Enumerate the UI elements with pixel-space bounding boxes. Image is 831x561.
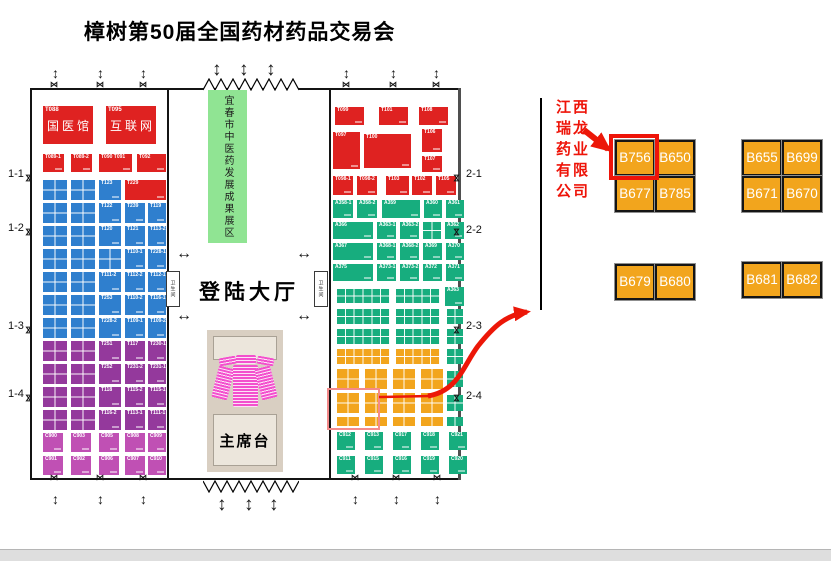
booth-name [447, 371, 463, 387]
company-name-line: 公司 [556, 181, 600, 202]
booth-name [393, 393, 415, 413]
flow-arrow-icon: ↕ [244, 495, 254, 514]
booth-name [335, 107, 364, 125]
booth-name [396, 289, 440, 303]
booth-name [99, 410, 121, 430]
flow-arrow-icon: ⋈ [24, 174, 32, 182]
booth: A363-2 [400, 222, 419, 239]
flow-arrow-icon: ⋈ [24, 228, 32, 236]
booth-name [333, 132, 360, 169]
booth [71, 272, 95, 292]
booth-name [99, 226, 121, 246]
side-room-right: 卫生间 [314, 271, 328, 307]
booth: A368-1 [377, 243, 396, 260]
booth-name [99, 387, 121, 407]
panel-booth: B682 [782, 262, 822, 298]
booth-name [445, 287, 464, 306]
booth: T098-2 [357, 176, 377, 195]
flow-arrow-icon: ⋈ [452, 394, 460, 402]
side-room-left: 卫生间 [166, 271, 180, 307]
panel-booth-label: B699 [786, 151, 818, 166]
panel-booth: B680 [655, 264, 695, 300]
booth-name [99, 295, 121, 315]
booth-name [337, 349, 390, 364]
booth-name [421, 432, 439, 450]
booth: T102 [412, 176, 432, 195]
booth-name [447, 309, 463, 324]
booth [393, 393, 415, 413]
flow-arrow-icon: ↕ [433, 66, 440, 80]
booth-name [43, 410, 67, 430]
booth: T095 互联网 [106, 106, 156, 144]
panel-booth-label: B677 [619, 187, 651, 202]
flow-arrow-icon: ↕ [343, 66, 350, 80]
booth [43, 387, 67, 407]
booth-name [357, 200, 377, 218]
booth: T231-2 [125, 364, 145, 384]
flow-arrow-icon: ↕ [52, 492, 59, 506]
booth [71, 318, 95, 338]
booth: C912 [337, 432, 355, 450]
booth: T107 [422, 156, 442, 172]
map-highlight-region [327, 388, 380, 430]
booth-name [43, 154, 64, 172]
panel-booth-label: B682 [786, 273, 818, 288]
booth-name [377, 243, 396, 260]
flow-arrow-icon: ↔ [176, 246, 192, 262]
booth: T112-2 [125, 272, 145, 292]
panel-booth: B650 [655, 140, 695, 176]
panel-booth: B785 [655, 176, 695, 212]
booth-name [148, 226, 166, 246]
booth-name [377, 264, 396, 281]
booth [71, 341, 95, 361]
booth-name [396, 309, 440, 324]
booth-name [125, 249, 145, 269]
booth: A367 [333, 243, 373, 260]
booth-name [379, 107, 408, 125]
booth-name [337, 369, 359, 389]
booth: T229 [125, 180, 166, 200]
booth-name [337, 432, 355, 450]
booth-name [43, 387, 67, 407]
booth-name [43, 272, 67, 292]
booth-name [71, 295, 95, 315]
booth [337, 369, 359, 389]
flow-arrow-icon: ⋈ [433, 474, 441, 482]
side-room-left-label: 卫生间 [170, 280, 177, 298]
company-name-line: 江西 [556, 97, 600, 118]
booth: T108 [419, 107, 448, 125]
booth [71, 295, 95, 315]
flow-arrow-icon: ⋈ [139, 474, 147, 482]
booth-name [99, 203, 121, 223]
booth-name [125, 318, 145, 338]
stage-label: 主席台 [213, 414, 277, 466]
booth-name [365, 432, 383, 450]
booth-name [125, 364, 145, 384]
row-label: 2-2 [466, 224, 482, 236]
flow-arrow-icon: ⋈ [452, 326, 460, 334]
booth [43, 341, 67, 361]
booth [447, 349, 463, 364]
booth [43, 410, 67, 430]
booth-name [393, 417, 415, 426]
booth: T113-1 [125, 410, 145, 430]
booth-name [333, 264, 373, 281]
flow-arrow-icon: ⋈ [392, 474, 400, 482]
booth: T230-1 [148, 341, 166, 361]
booth: A371 [446, 264, 464, 281]
booth-name [333, 243, 373, 260]
booth: T089-1 [43, 154, 64, 172]
booth: A370 [446, 243, 464, 260]
booth-name [337, 329, 390, 344]
booth: T092 [137, 154, 166, 172]
booth: C902 [71, 456, 91, 475]
booth [71, 364, 95, 384]
booth-name [421, 369, 443, 389]
booth: A358-1 [333, 200, 353, 218]
row-label: 2-3 [466, 320, 482, 332]
booth: C917 [393, 432, 411, 450]
booth-name [412, 176, 432, 195]
flow-arrow-icon: ⋈ [24, 326, 32, 334]
booth: T103 [386, 176, 409, 195]
row-label: 2-4 [466, 390, 482, 402]
booth-name [71, 154, 92, 172]
booth-name [125, 433, 145, 452]
booth: T115-2 [125, 387, 145, 407]
booth: C919 [421, 456, 439, 474]
flow-arrow-icon: ↔ [296, 308, 312, 324]
booth: A369 [423, 243, 442, 260]
booth [43, 364, 67, 384]
booth: T110-2 [125, 295, 145, 315]
panel-booth-label: B680 [659, 275, 691, 290]
booth-name [148, 341, 166, 361]
flow-arrow-icon: ↕ [434, 492, 441, 506]
booth-name: 国医馆 [43, 106, 93, 144]
company-name-line: 瑞龙 [556, 118, 600, 139]
panel-booth-label: B671 [746, 187, 778, 202]
booth: T116-1 [148, 295, 166, 315]
booth-name [446, 243, 464, 260]
booth-name [148, 456, 166, 475]
booth [421, 417, 443, 426]
page-title: 樟树第50届全国药材药品交易会 [84, 16, 395, 46]
booth: T109-1 [125, 318, 145, 338]
booth: T239 [125, 203, 145, 223]
booth: T231-1 [148, 364, 166, 384]
flow-arrow-icon: ↕ [393, 492, 400, 506]
booth: A373-2 [400, 264, 419, 281]
booth [43, 180, 67, 200]
booth-name [400, 264, 419, 281]
booth [71, 387, 95, 407]
booth [447, 417, 463, 426]
booth [43, 272, 67, 292]
flow-arrow-icon: ⋈ [96, 474, 104, 482]
row-label: 2-1 [466, 168, 482, 180]
floor-plan-page: { "title": "樟树第50届全国药材药品交易会", "zones": {… [0, 0, 831, 561]
booth [396, 289, 440, 303]
booth: T090 T091 [99, 154, 132, 172]
side-room-right-label: 卫生间 [318, 280, 325, 298]
row-label: 1-4 [8, 388, 24, 400]
booth: C910 [148, 456, 166, 475]
booth [396, 329, 440, 344]
booth-name [400, 243, 419, 260]
booth [393, 369, 415, 389]
booth: T111-2 [99, 272, 121, 292]
booth-name [422, 156, 442, 172]
booth [393, 417, 415, 426]
booth: T100 [364, 134, 411, 168]
panel-booth: B670 [782, 176, 822, 212]
booth [421, 393, 443, 413]
booth-name [71, 341, 95, 361]
flow-arrow-icon: ⋈ [389, 81, 397, 89]
booth: C900 [43, 433, 63, 452]
booth-name [137, 154, 166, 172]
booth-name [71, 272, 95, 292]
flow-arrow-icon: ↕ [266, 60, 276, 79]
panel-booth-label: B785 [659, 187, 691, 202]
flow-arrow-icon: ↕ [97, 66, 104, 80]
booth: T252 [99, 364, 121, 384]
booth-name [125, 203, 145, 223]
booth-name [337, 289, 390, 303]
flow-arrow-icon: ⋈ [96, 81, 104, 89]
booth: A363-1 [377, 222, 396, 239]
company-name-line: 有限 [556, 160, 600, 181]
flow-arrow-icon: ⋈ [452, 228, 460, 236]
booth-name [125, 180, 166, 200]
booth-name [125, 341, 145, 361]
booth: T115-1 [148, 387, 166, 407]
booth-name [125, 295, 145, 315]
booth: T112-1 [148, 272, 166, 292]
booth [43, 318, 67, 338]
flow-arrow-icon: ⋈ [452, 174, 460, 182]
booth-name [148, 272, 166, 292]
flow-arrow-icon: ⋈ [50, 81, 58, 89]
booth-name [393, 456, 411, 474]
row-label: 1-3 [8, 320, 24, 332]
highlight-booth-box [609, 134, 659, 180]
booth-name [99, 154, 132, 172]
booth-name [148, 249, 166, 269]
booth-name [99, 272, 121, 292]
booth-name [449, 432, 467, 450]
booth: T253 [99, 295, 121, 315]
booth-name [393, 432, 411, 450]
booth: C911 [337, 456, 355, 474]
booth: T110-1 [125, 249, 145, 269]
booth-name: 互联网 [106, 106, 156, 144]
entrance-sawtooth-bottom [203, 480, 299, 493]
booth-name [364, 134, 411, 168]
flow-arrow-icon: ↕ [97, 492, 104, 506]
flow-arrow-icon: ↕ [140, 492, 147, 506]
booth-name [43, 203, 67, 223]
row-label: 1-1 [8, 168, 24, 180]
booth: T116-2 [99, 410, 121, 430]
booth: A360 [424, 200, 442, 218]
booth: C903 [71, 433, 91, 452]
booth: C905 [99, 433, 119, 452]
booth-name [71, 433, 91, 452]
booth-name [148, 410, 166, 430]
booth-name [43, 318, 67, 338]
booth-name [396, 329, 440, 344]
booth [71, 249, 95, 269]
achievement-zone: 宜春市中医药发展成果展区 [208, 90, 247, 243]
panel-booth: B681 [742, 262, 782, 298]
booth: C915 [365, 456, 383, 474]
flow-arrow-icon: ⋈ [139, 81, 147, 89]
booth-name [71, 249, 95, 269]
booth [423, 222, 441, 239]
booth: T228-2 [99, 318, 121, 338]
booth-name [148, 433, 166, 452]
flow-arrow-icon: ↕ [269, 495, 279, 514]
booth-name [382, 200, 420, 218]
booth-name [99, 433, 119, 452]
booth [337, 289, 390, 303]
booth: T122 [99, 203, 121, 223]
booth [421, 369, 443, 389]
flow-arrow-icon: ↕ [217, 495, 227, 514]
flow-arrow-icon: ↕ [140, 66, 147, 80]
booth-name [377, 222, 396, 239]
booth-name [400, 222, 419, 239]
achievement-zone-label: 宜春市中医药发展成果展区 [220, 95, 235, 239]
panel-booth: B679 [615, 264, 655, 300]
flow-arrow-icon: ↕ [352, 492, 359, 506]
booth: T120 [99, 226, 121, 246]
booth: A361 [446, 200, 464, 218]
panel-booth: B671 [742, 176, 782, 212]
panel-booth-label: B650 [659, 151, 691, 166]
booth [43, 203, 67, 223]
booth-name [43, 249, 67, 269]
booth-name [125, 410, 145, 430]
booth-name [71, 410, 95, 430]
booth-name [71, 318, 95, 338]
booth-name [386, 176, 409, 195]
seat-block [236, 355, 256, 364]
row-label: 1-2 [8, 222, 24, 234]
panel-booth: B699 [782, 140, 822, 176]
booth-name [421, 393, 443, 413]
window-bottom-strip [0, 549, 831, 561]
booth-name [446, 200, 464, 218]
booth [71, 180, 95, 200]
booth-name [148, 387, 166, 407]
booth: T251 [99, 341, 121, 361]
booth-name [148, 318, 166, 338]
booth-name [449, 456, 467, 474]
booth: C909 [148, 433, 166, 452]
booth-name [337, 309, 390, 324]
booth: T113-2 [148, 226, 166, 246]
lobby-label: 登陆大厅 [198, 276, 300, 300]
flow-arrow-icon: ↔ [176, 308, 192, 324]
booth: A359 [382, 200, 420, 218]
booth [396, 309, 440, 324]
booth-name [125, 387, 145, 407]
booth: T098-1 [333, 176, 353, 195]
booth-name [71, 456, 91, 475]
booth-name [43, 364, 67, 384]
booth [71, 203, 95, 223]
booth [447, 371, 463, 387]
panel-booth: B655 [742, 140, 782, 176]
booth-name [421, 417, 443, 426]
booth: C913 [365, 432, 383, 450]
booth-name [333, 222, 373, 239]
booth-name [148, 203, 166, 223]
booth-name [446, 264, 464, 281]
booth: T228-1 [148, 249, 166, 269]
booth-name [148, 295, 166, 315]
panel-booth-label: B655 [746, 151, 778, 166]
booth: A363 [445, 287, 464, 306]
booth: C908 [125, 433, 145, 452]
booth-name [71, 364, 95, 384]
booth-name [333, 176, 353, 195]
booth-name [43, 341, 67, 361]
panel-booth-label: B670 [786, 187, 818, 202]
booth: T097 [333, 132, 360, 169]
booth [43, 295, 67, 315]
booth: A372 [423, 264, 442, 281]
booth: A366 [333, 222, 373, 239]
booth-name [421, 456, 439, 474]
booth: T119 [148, 203, 166, 223]
flow-arrow-icon: ↔ [296, 246, 312, 262]
booth-name [99, 180, 121, 200]
booth-name [43, 295, 67, 315]
booth-name [43, 180, 67, 200]
booth-name [423, 264, 442, 281]
booth-name [365, 456, 383, 474]
booth-name [71, 203, 95, 223]
booth: A373-1 [377, 264, 396, 281]
flow-arrow-icon: ⋈ [432, 81, 440, 89]
booth-name [125, 226, 145, 246]
booth [337, 309, 390, 324]
booth-name [43, 433, 63, 452]
company-name-line: 药业 [556, 139, 600, 160]
panel-booth: B677 [615, 176, 655, 212]
flow-arrow-icon: ↕ [212, 60, 222, 79]
booth-name [99, 249, 121, 269]
booth-name [71, 226, 95, 246]
booth: T111-1 [148, 410, 166, 430]
booth: C920 [449, 456, 467, 474]
booth [43, 226, 67, 246]
booth-name [393, 369, 415, 389]
booth-name [423, 243, 442, 260]
booth-name [337, 456, 355, 474]
panel-divider-line [540, 98, 542, 310]
company-name: 江西瑞龙药业有限公司 [556, 97, 600, 202]
booth [337, 349, 390, 364]
booth [71, 410, 95, 430]
